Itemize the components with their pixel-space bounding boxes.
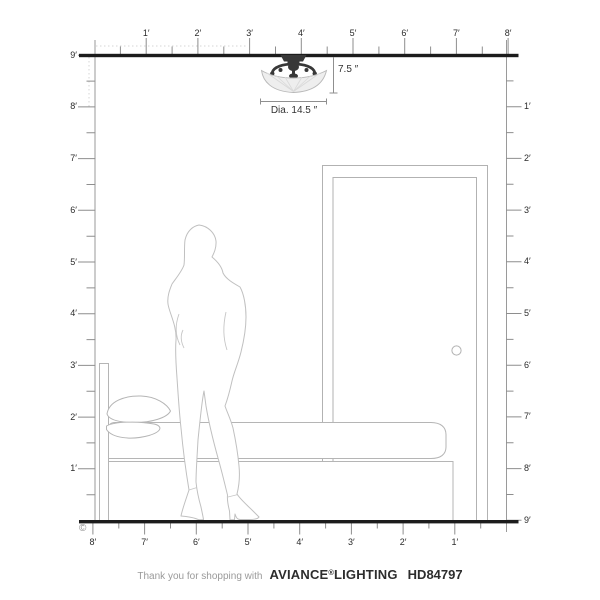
bottom-ruler <box>93 522 481 535</box>
top-ruler-label-8ft: 8′ <box>505 28 512 39</box>
top-ruler-label-7ft: 7′ <box>453 28 460 39</box>
bottom-ruler-label-3ft: 3′ <box>348 537 355 548</box>
left-ruler-label-8ft: 8′ <box>51 101 77 112</box>
brand-suffix: LIGHTING <box>334 567 398 582</box>
top-ruler-label-3ft: 3′ <box>246 28 253 39</box>
top-ruler-label-2ft: 2′ <box>195 28 202 39</box>
right-ruler <box>506 81 522 520</box>
right-ruler-label-4ft: 4′ <box>524 256 531 267</box>
bed-base <box>109 462 454 521</box>
height-dimension-line <box>330 57 338 93</box>
copyright-symbol: © <box>79 523 86 534</box>
bottom-ruler-label-7ft: 7′ <box>141 537 148 548</box>
left-ruler-label-6ft: 6′ <box>51 205 77 216</box>
top-ruler-label-6ft: 6′ <box>401 28 408 39</box>
left-ruler-label-7ft: 7′ <box>51 153 77 164</box>
room-diagram-graphic <box>0 0 600 600</box>
left-ruler-label-3ft: 3′ <box>51 360 77 371</box>
right-ruler-label-5ft: 5′ <box>524 308 531 319</box>
pillow <box>107 396 171 423</box>
bottom-ruler-label-4ft: 4′ <box>296 537 303 548</box>
top-ruler-label-5ft: 5′ <box>350 28 357 39</box>
left-ruler-label-5ft: 5′ <box>51 257 77 268</box>
left-ruler-label-2ft: 2′ <box>51 412 77 423</box>
model-number: HD84797 <box>408 567 463 582</box>
door-knob <box>452 346 461 355</box>
mounting-hardware <box>279 55 309 79</box>
left-ruler-label-4ft: 4′ <box>51 308 77 319</box>
right-ruler-label-2ft: 2′ <box>524 153 531 164</box>
registered-trademark-icon: ® <box>328 568 334 577</box>
bottom-ruler-label-5ft: 5′ <box>245 537 252 548</box>
left-ruler-label-1ft: 1′ <box>51 463 77 474</box>
brand-name: AVIANCE <box>269 567 328 582</box>
right-ruler-label-3ft: 3′ <box>524 205 531 216</box>
top-ruler-label-4ft: 4′ <box>298 28 305 39</box>
bottom-ruler-label-6ft: 6′ <box>193 537 200 548</box>
right-ruler-label-8ft: 8′ <box>524 463 531 474</box>
headboard <box>100 364 109 521</box>
left-ruler-label-9ft: 9′ <box>51 50 77 61</box>
product-dimension-diagram: 7.5 ″ Dia. 14.5 ″ 1′ 2′ 3′ 4′ 5′ 6′ 7′ 8… <box>0 0 600 600</box>
top-ruler <box>120 38 508 54</box>
right-ruler-label-7ft: 7′ <box>524 411 531 422</box>
ceiling-light-fixture <box>262 55 327 93</box>
floor-line <box>79 520 519 523</box>
bottom-ruler-label-1ft: 1′ <box>451 537 458 548</box>
fixture-height-label: 7.5 ″ <box>338 64 358 76</box>
right-ruler-label-1ft: 1′ <box>524 101 531 112</box>
fixture-diameter-label: Dia. 14.5 ″ <box>271 105 317 117</box>
top-ruler-label-1ft: 1′ <box>143 28 150 39</box>
footer-message: Thank you for shopping with <box>137 571 262 582</box>
right-ruler-label-9ft: 9′ <box>524 515 531 526</box>
footer: Thank you for shopping with AVIANCE ® LI… <box>0 567 600 582</box>
bottom-ruler-label-2ft: 2′ <box>400 537 407 548</box>
right-ruler-label-6ft: 6′ <box>524 360 531 371</box>
bottom-ruler-label-8ft: 8′ <box>90 537 97 548</box>
left-ruler <box>78 55 96 495</box>
